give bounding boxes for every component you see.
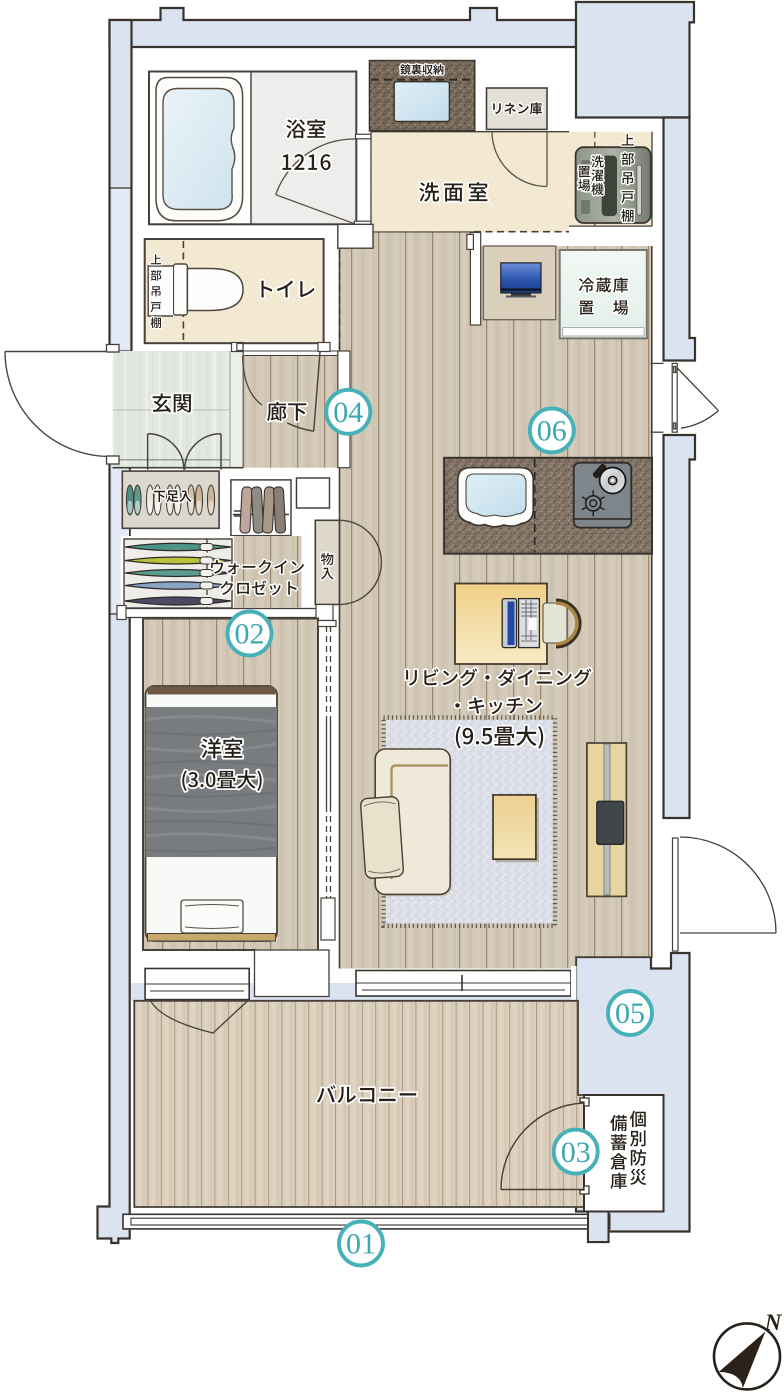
svg-text:02: 02 [235, 618, 265, 651]
svg-text:05: 05 [615, 997, 645, 1030]
svg-text:N: N [764, 1310, 783, 1335]
svg-text:03: 03 [561, 1136, 591, 1169]
svg-text:04: 04 [333, 396, 363, 429]
svg-text:06: 06 [537, 415, 567, 448]
svg-text:01: 01 [346, 1228, 376, 1261]
